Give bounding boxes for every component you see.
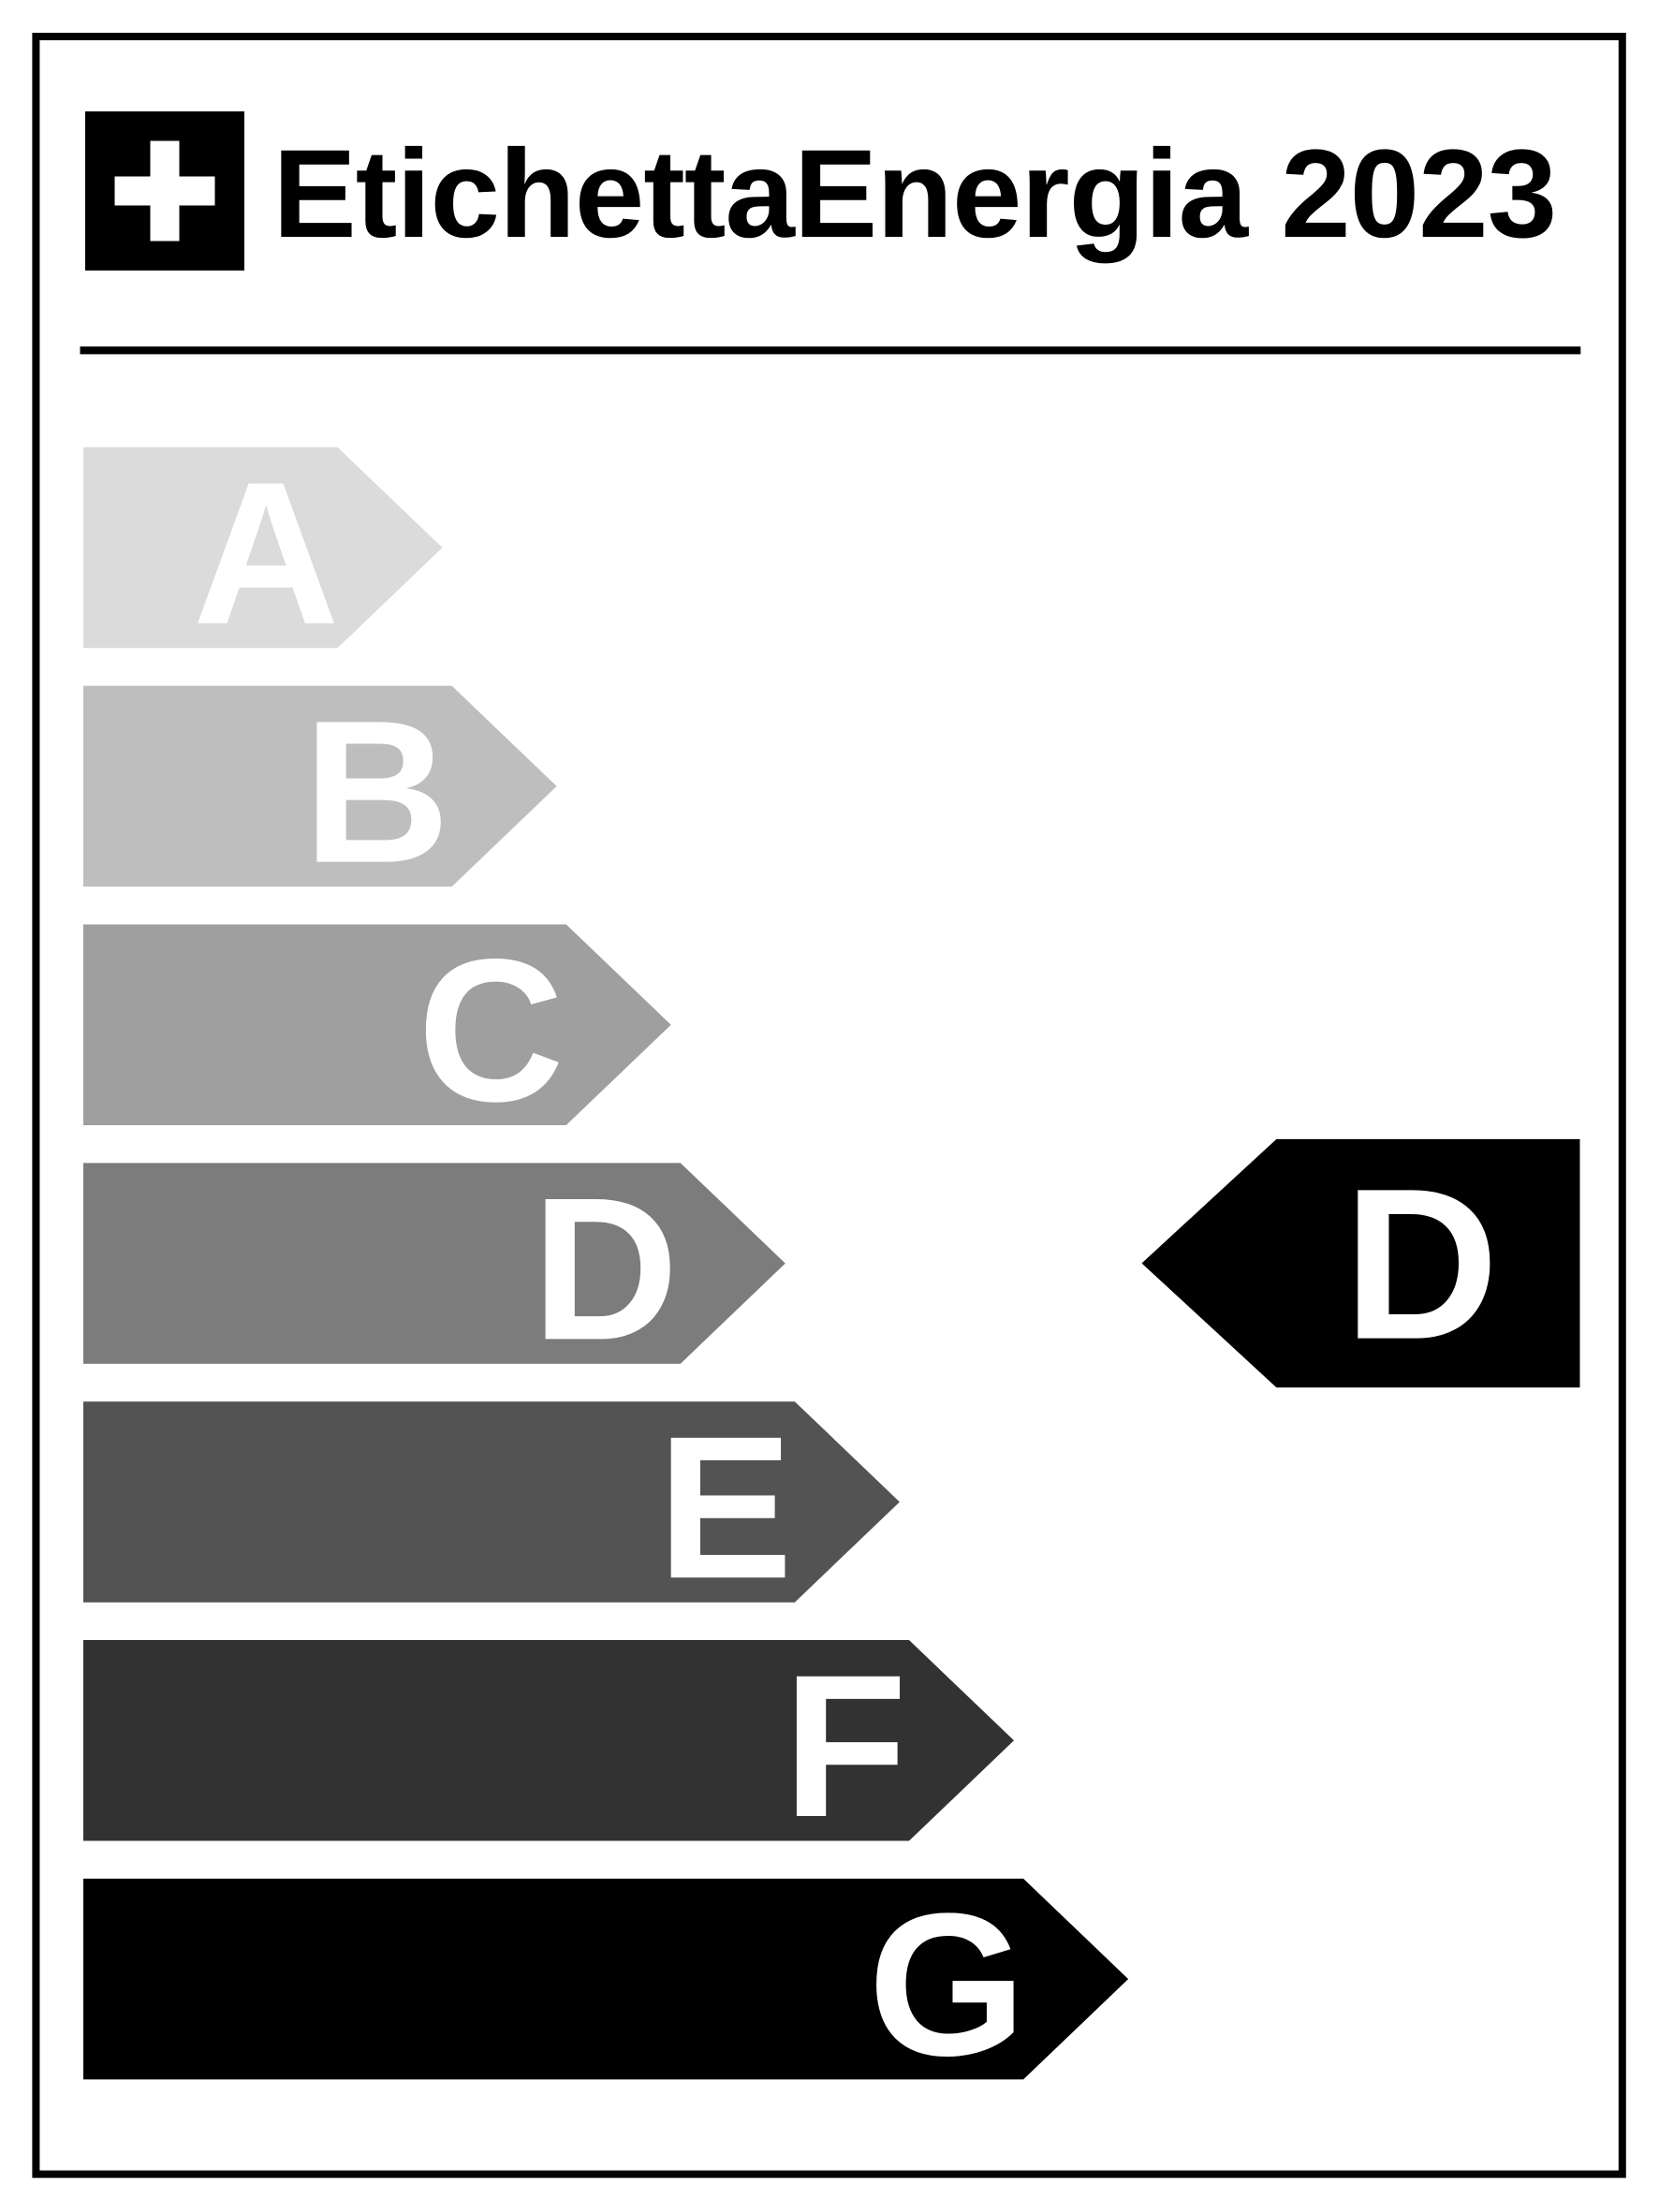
svg-text:B: B	[303, 679, 450, 905]
svg-text:G: G	[868, 1871, 1026, 2098]
svg-text:E: E	[657, 1394, 793, 1620]
svg-text:D: D	[532, 1155, 679, 1382]
svg-text:A: A	[193, 440, 340, 667]
svg-text:EtichettaEnergia 2023: EtichettaEnergia 2023	[272, 125, 1556, 264]
svg-text:F: F	[783, 1633, 907, 1859]
svg-text:C: C	[418, 917, 565, 1144]
svg-text:D: D	[1343, 1144, 1499, 1384]
